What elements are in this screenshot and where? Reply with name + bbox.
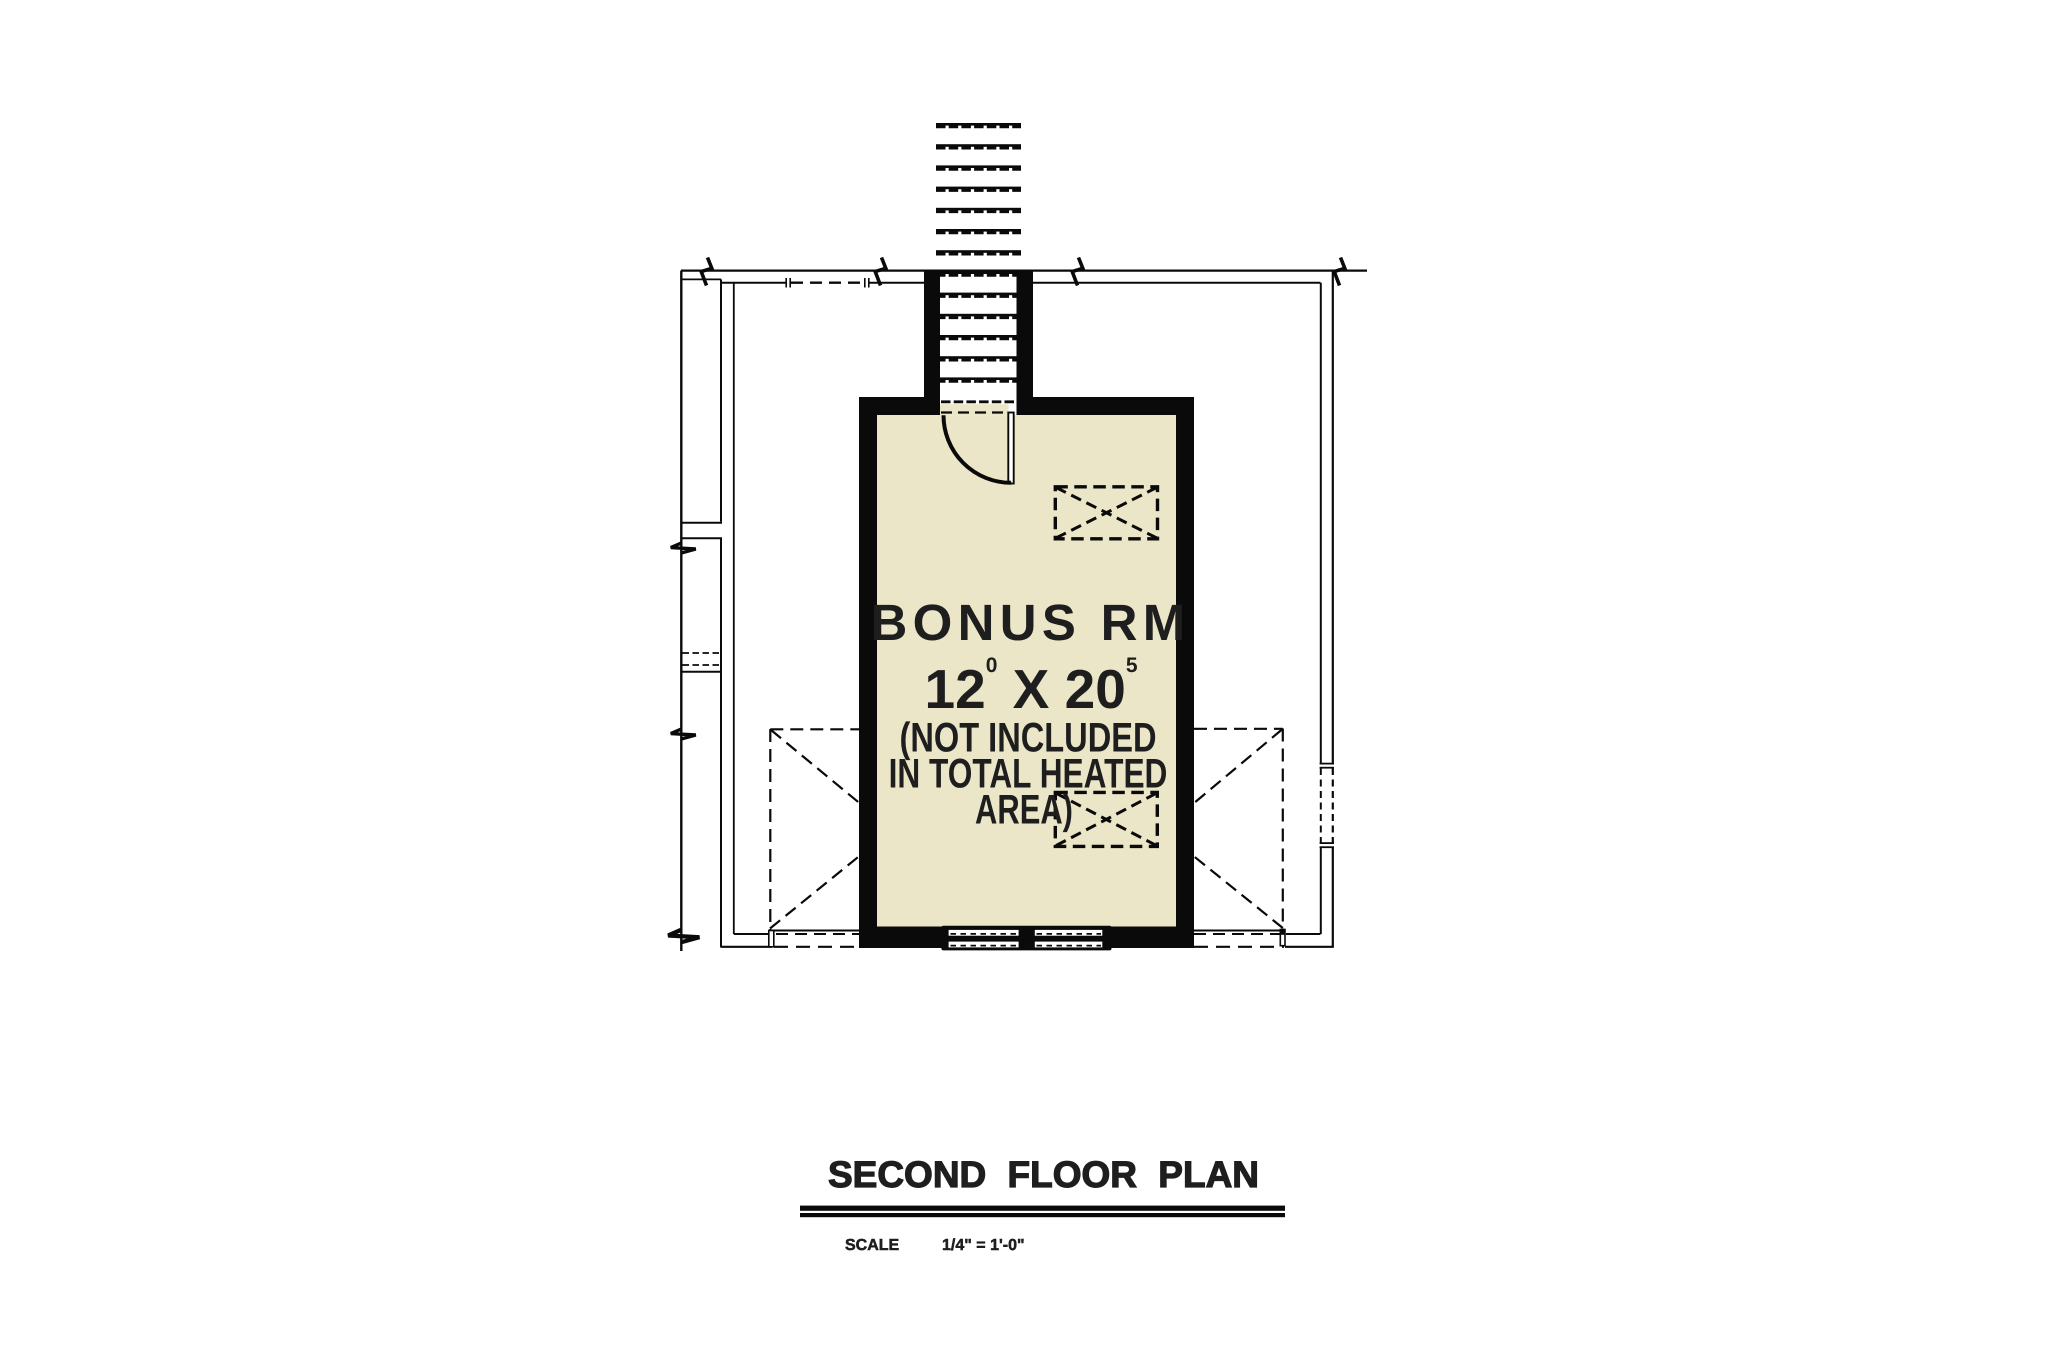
- svg-text:AREA): AREA): [975, 786, 1073, 833]
- svg-text:1/4" = 1'-0": 1/4" = 1'-0": [942, 1237, 1025, 1254]
- svg-text:SECOND FLOOR PLAN: SECOND FLOOR PLAN: [828, 1154, 1259, 1195]
- svg-text:BONUS RM: BONUS RM: [870, 594, 1190, 651]
- svg-text:120 X 205: 120 X 205: [925, 654, 1138, 720]
- svg-text:SCALE: SCALE: [845, 1237, 900, 1254]
